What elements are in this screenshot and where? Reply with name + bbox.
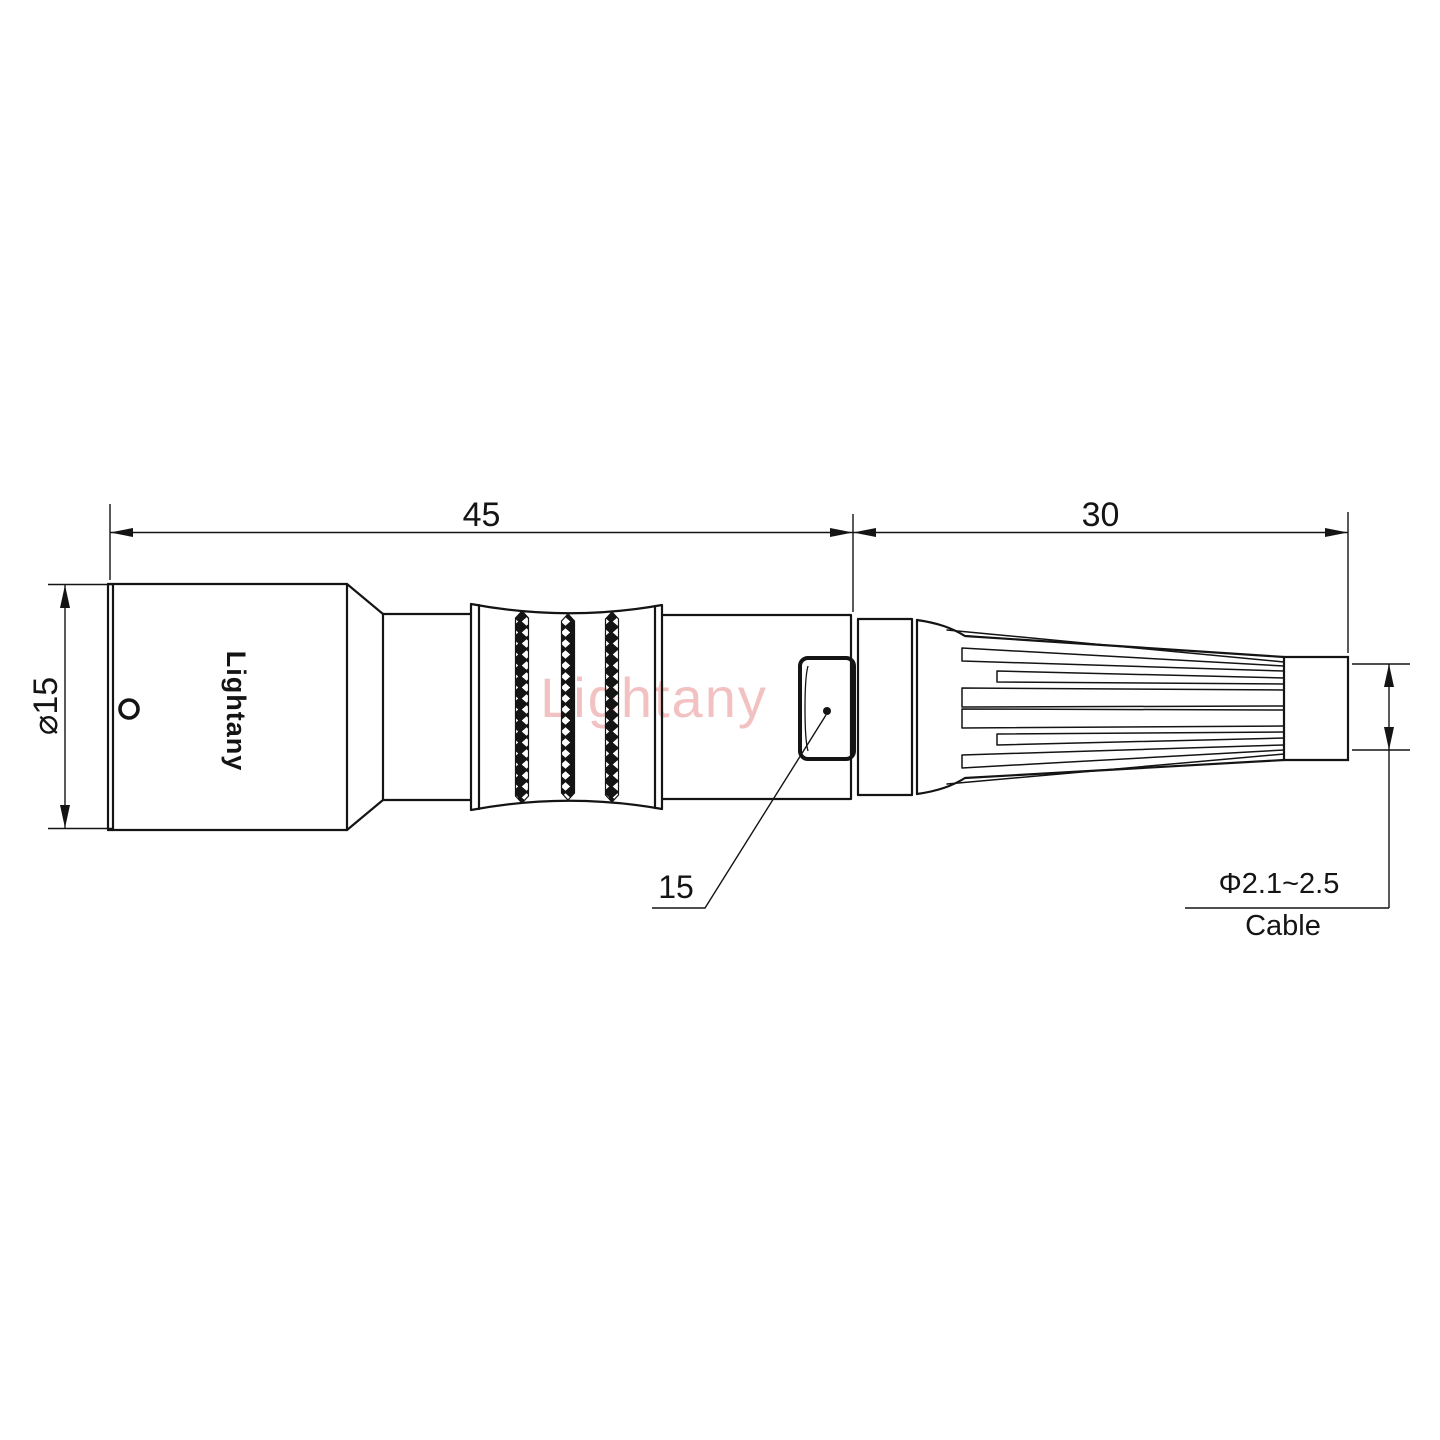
cable-label: Cable bbox=[1188, 912, 1378, 941]
connector-technical-drawing: Lightany bbox=[0, 0, 1440, 1440]
mid-section bbox=[662, 615, 858, 799]
cable-collar bbox=[1284, 657, 1348, 760]
body-chamfer bbox=[347, 584, 383, 830]
knurl-bands bbox=[516, 611, 619, 803]
knurl-band bbox=[516, 611, 529, 803]
knurl-band bbox=[562, 614, 575, 800]
dimension-value-latch-callout: 15 bbox=[634, 871, 718, 903]
latch-leader-dot bbox=[823, 707, 831, 715]
brand-label-on-body: Lightany bbox=[217, 626, 249, 796]
rear-nut bbox=[858, 619, 917, 795]
dimension-value-body-diameter: ⌀15 bbox=[29, 631, 65, 781]
knurl-band bbox=[606, 612, 619, 802]
front-face bbox=[108, 584, 113, 830]
dimension-value-cable-diameter-range: Φ2.1~2.5 bbox=[1188, 870, 1370, 899]
keying-hole bbox=[120, 700, 138, 718]
drawing-canvas bbox=[0, 0, 1440, 1440]
coupling-neck bbox=[383, 614, 471, 800]
dimension-value-rear-length: 30 bbox=[853, 498, 1348, 532]
dimension-value-overall-length: 45 bbox=[110, 498, 853, 532]
